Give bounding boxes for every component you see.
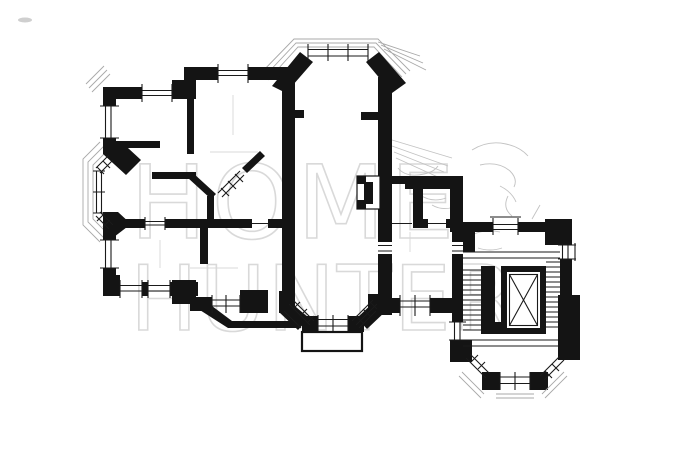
floor-plan-drawing: HOME HUNTER	[0, 0, 683, 455]
smudge-mark	[18, 18, 32, 23]
elevator-shaft	[507, 272, 540, 328]
fireplace	[357, 176, 380, 209]
floor-plan-canvas: HOME HUNTER	[0, 0, 683, 455]
